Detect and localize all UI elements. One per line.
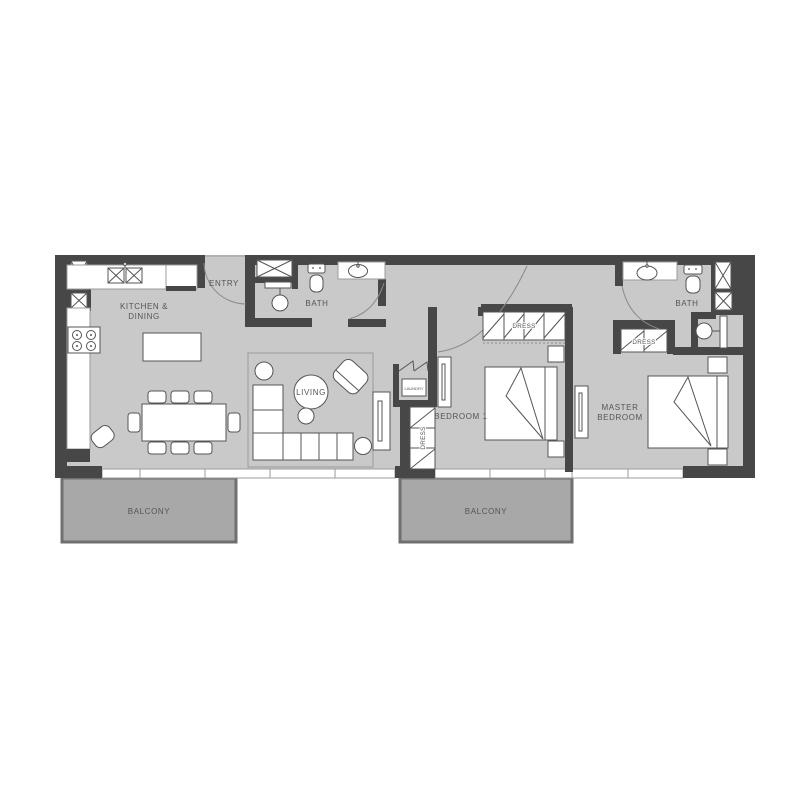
hall-wardrobe: DRESS (410, 407, 435, 469)
bedroom1-mirror-icon (438, 357, 451, 407)
dining-chair (171, 391, 189, 403)
dining-table (142, 404, 226, 441)
kitchen-island (143, 333, 201, 361)
master-label-line2: BEDROOM (597, 413, 643, 422)
side-table-icon (355, 438, 372, 455)
balcony-right-label: BALCONY (465, 507, 507, 516)
master-mirror-icon (575, 386, 588, 438)
washbasin-icon (338, 261, 385, 279)
nightstand (708, 357, 727, 373)
bath2-label: BATH (675, 299, 698, 308)
toilet-icon (308, 264, 325, 292)
floor-plan-drawing: BALCONY BALCONY (0, 0, 800, 800)
balcony-left: BALCONY (62, 478, 236, 542)
nightstand (548, 346, 564, 362)
living-label: LIVING (296, 388, 326, 397)
kitchen-label-line2: DINING (128, 312, 160, 321)
master-wardrobe: DRESS (621, 329, 667, 352)
nightstand (548, 441, 564, 457)
coffee-table-small-icon (298, 408, 314, 424)
bedroom1-label: BEDROOM 1 (434, 412, 487, 421)
kitchen-label-line1: KITCHEN & (120, 302, 168, 311)
dining-chair (171, 442, 189, 454)
dining-chair (194, 391, 212, 403)
nightstand (708, 449, 727, 465)
master-dress-label: DRESS (632, 339, 655, 346)
window-band-living (102, 469, 395, 478)
dining-chair (148, 442, 166, 454)
bath2-toilet-icon (684, 265, 702, 293)
tv-console-icon (373, 392, 390, 450)
entry-label: ENTRY (209, 279, 239, 288)
dining-chair (228, 413, 240, 432)
dining-chair (128, 413, 140, 432)
balcony-left-label: BALCONY (128, 507, 170, 516)
bath2-washbasin-icon (623, 261, 677, 280)
laundry-label: LAUNDRY (404, 386, 423, 391)
balcony-right: BALCONY (400, 478, 572, 542)
master-label-line1: MASTER (602, 403, 639, 412)
side-table-icon (255, 362, 273, 380)
dining-chair (194, 442, 212, 454)
window-band-bedrooms (435, 469, 683, 478)
bath2-shaft-icon (711, 259, 743, 315)
bath1-label: BATH (305, 299, 328, 308)
bedroom1-dress-label: DRESS (512, 323, 535, 330)
stove-icon (68, 327, 100, 353)
dining-chair (148, 391, 166, 403)
shower-head-icon (272, 295, 288, 311)
floor-plan-page: BALCONY BALCONY (0, 0, 800, 800)
hall-dress-label: DRESS (420, 426, 427, 449)
bedroom1-wardrobe: DRESS (483, 312, 565, 343)
